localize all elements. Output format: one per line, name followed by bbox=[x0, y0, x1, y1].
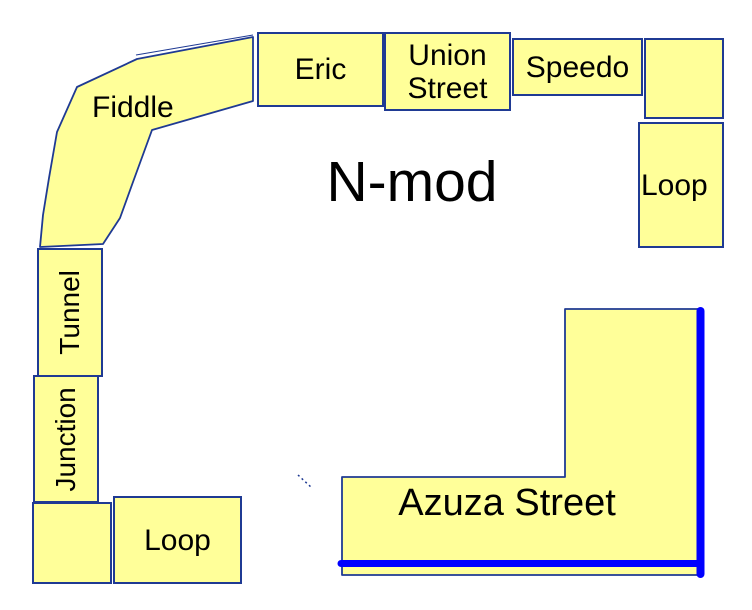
fiddle-module-shape bbox=[40, 37, 253, 247]
azuza-street-module-shape bbox=[342, 309, 700, 575]
junction-module: Junction bbox=[33, 375, 99, 503]
loop-south-module: Loop bbox=[113, 496, 242, 584]
azuza-street-module-label: Azuza Street bbox=[342, 481, 672, 525]
eric-module: Eric bbox=[257, 32, 384, 107]
union-street-module-label: Union Street bbox=[386, 39, 509, 105]
speedo-module: Speedo bbox=[512, 38, 643, 96]
loop-east-module: Loop bbox=[638, 122, 724, 248]
eric-module-label: Eric bbox=[295, 53, 347, 86]
page-title: N-mod bbox=[295, 150, 529, 214]
speedo-module-label: Speedo bbox=[526, 51, 629, 84]
loop-south-module-label: Loop bbox=[144, 524, 211, 557]
loop-east-module-label: Loop bbox=[641, 169, 708, 202]
corner-southwest-module bbox=[32, 502, 112, 584]
junction-module-label: Junction bbox=[51, 387, 82, 491]
stray-dotted-line bbox=[298, 475, 312, 488]
layout-diagram: Fiddle Azuza Street N-mod Eric Union Str… bbox=[0, 0, 752, 610]
union-street-module: Union Street bbox=[384, 32, 511, 111]
corner-northeast-module bbox=[644, 38, 724, 119]
tunnel-module: Tunnel bbox=[37, 248, 103, 377]
fiddle-module-label: Fiddle bbox=[92, 90, 174, 126]
tunnel-module-label: Tunnel bbox=[55, 270, 86, 355]
